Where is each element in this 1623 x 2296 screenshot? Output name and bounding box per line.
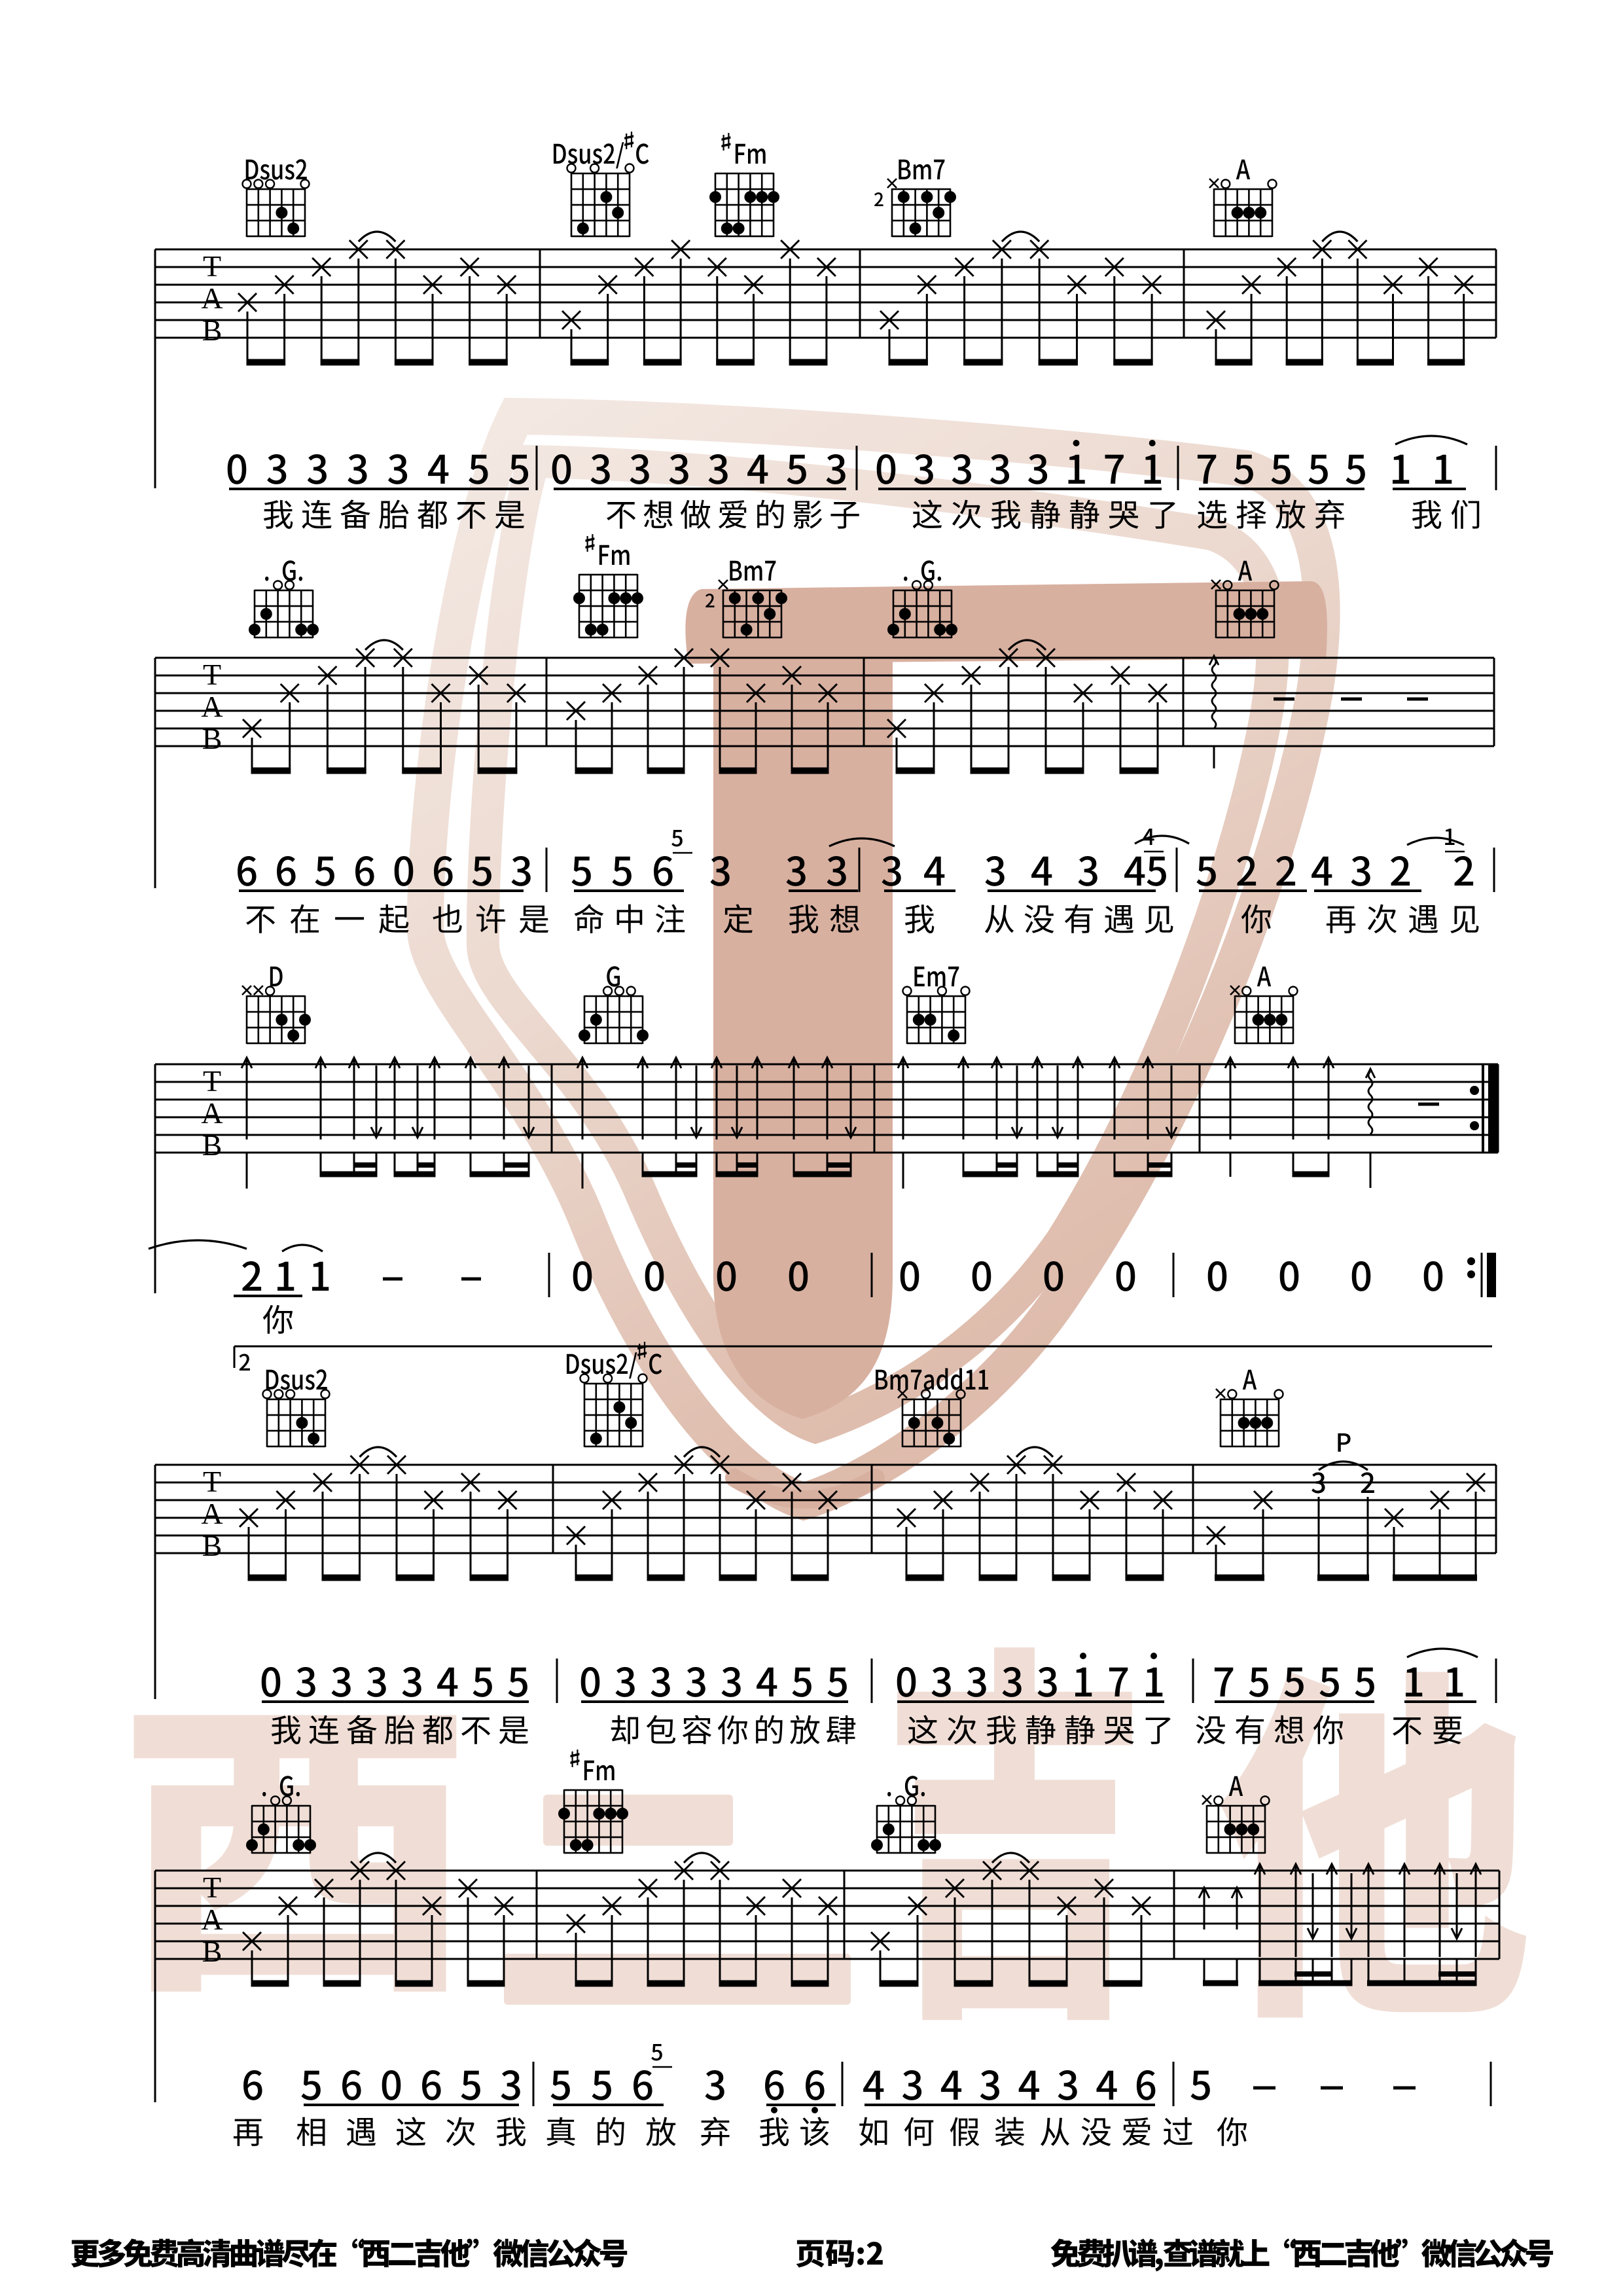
svg-text:T: T: [203, 249, 221, 283]
svg-text:B: B: [202, 314, 223, 347]
svg-text:T: T: [203, 1064, 221, 1098]
svg-text:B: B: [202, 722, 223, 755]
svg-text:T: T: [203, 1465, 221, 1498]
svg-text:A: A: [201, 1096, 223, 1130]
svg-text:T: T: [203, 1871, 221, 1904]
svg-text:T: T: [203, 658, 221, 691]
svg-text:B: B: [202, 1935, 223, 1968]
svg-text:A: A: [201, 1497, 223, 1530]
svg-text:B: B: [202, 1128, 223, 1162]
svg-text:B: B: [202, 1529, 223, 1562]
svg-text:A: A: [201, 690, 223, 723]
svg-text:A: A: [201, 1903, 223, 1936]
svg-text:A: A: [201, 281, 223, 315]
